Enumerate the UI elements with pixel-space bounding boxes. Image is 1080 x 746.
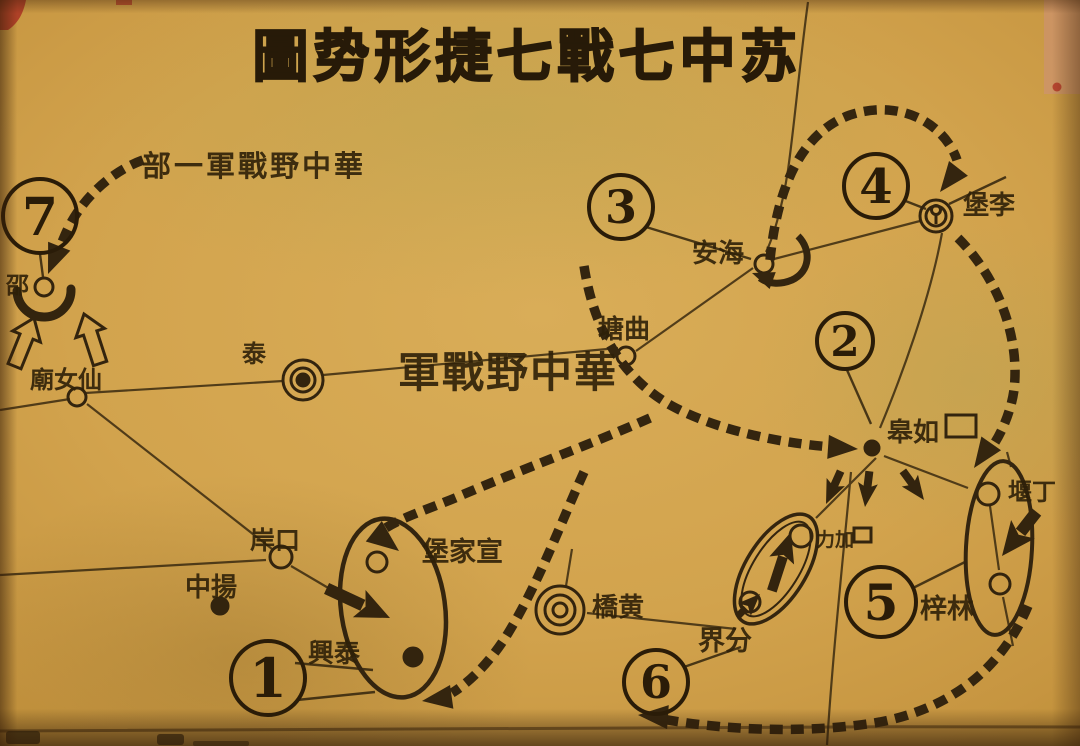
town-shaobo	[35, 278, 53, 296]
cutoff-print-fragment	[157, 734, 184, 745]
label-kouan: 岸口	[250, 526, 300, 555]
label-fenjie: 界分	[698, 626, 752, 657]
label-huazhong-detachment: 部一軍戰野中華	[142, 149, 366, 183]
red-corner-mark	[0, 0, 26, 30]
town-jiali	[790, 525, 812, 547]
town-taixing-dot	[404, 648, 422, 666]
attack-arrow-taixing	[320, 575, 396, 632]
label-xuanjiabao: 堡家宣	[422, 536, 503, 568]
road	[0, 399, 70, 410]
label-huazhong-field-army: 軍戰野中華	[398, 348, 618, 397]
outline-arrows	[1, 309, 115, 371]
road	[85, 381, 283, 393]
leader-2	[847, 370, 871, 424]
battle-4: 4	[844, 154, 908, 218]
road	[636, 268, 753, 351]
label-rugao: 皋如	[887, 417, 939, 448]
rugao-square-symbol	[946, 415, 976, 437]
battle-7-number: 7	[22, 187, 58, 248]
road	[87, 404, 272, 549]
town-huangqiao-outer	[536, 586, 584, 634]
label-huangqiao: 橋黄	[592, 593, 644, 623]
battle-numbers: 1 2 3 4 5 6 7	[3, 154, 916, 715]
label-xiannvmiao: 廟女仙	[30, 366, 102, 394]
leader-5	[913, 562, 965, 588]
road	[774, 221, 920, 259]
town-dingyan	[977, 483, 999, 505]
label-taizhou: 泰	[242, 340, 267, 368]
road	[990, 506, 999, 570]
arrow-route-to-shaobo	[53, 160, 143, 262]
battle-2-number: 2	[830, 317, 859, 366]
leader-1b	[297, 692, 375, 700]
town-symbols	[17, 200, 1010, 666]
battle-5: 5	[846, 567, 916, 637]
battle-2: 2	[817, 313, 873, 369]
road	[566, 549, 572, 586]
battle-3: 3	[589, 175, 653, 239]
arrow-south-to-taixing	[452, 472, 584, 693]
road	[884, 456, 968, 488]
arrow-center-to-rugao	[584, 266, 832, 447]
label-yangzhong: 中揚	[185, 573, 237, 603]
battle-1-number: 1	[249, 646, 287, 710]
cutoff-print-fragment	[193, 741, 249, 746]
attack-arrow-jiali	[759, 528, 803, 595]
arrowhead	[827, 435, 859, 461]
town-linzi	[990, 574, 1010, 594]
outline-arrow	[70, 309, 115, 368]
battle-6: 6	[624, 650, 688, 714]
town-huangqiao-inner	[553, 603, 567, 617]
battle-6-number: 6	[640, 655, 672, 709]
pink-edge-strip	[1044, 0, 1080, 94]
town-libao-core	[932, 206, 941, 215]
leader-7	[40, 254, 43, 277]
label-jiali: 力加	[816, 528, 854, 551]
red-edge-speck	[116, 0, 132, 5]
label-shaobo: 邵	[5, 273, 29, 299]
paper-crease	[0, 727, 1080, 731]
arrow-east-arc	[958, 238, 1015, 452]
label-linzi: 梓林	[920, 593, 974, 625]
battle-4-number: 4	[859, 159, 892, 215]
town-huangqiao-mid	[545, 595, 575, 625]
road	[880, 233, 942, 428]
map-title: 圖势形捷七戰七中苏	[253, 25, 802, 90]
attack-arrow-large	[990, 503, 1048, 566]
arrow-to-xuanjiabao	[380, 418, 650, 532]
town-rugao-dot	[865, 441, 879, 455]
cutoff-print-fragment	[6, 731, 40, 744]
jiali-square-symbol	[854, 528, 871, 542]
battle-1: 1	[231, 641, 305, 715]
label-qutang: 塘曲	[598, 314, 650, 345]
town-xuanjiabao	[367, 552, 387, 572]
leader-lines	[40, 177, 1006, 700]
red-speck	[1053, 83, 1062, 92]
town-taizhou-dot	[297, 374, 309, 386]
battle-map: 圖势形捷七戰七中苏	[0, 0, 1080, 746]
label-dingyan: 堰丁	[1008, 478, 1056, 506]
label-taixing: 興泰	[308, 639, 361, 669]
battle-7: 7	[3, 179, 77, 253]
battle-5-number: 5	[864, 573, 899, 632]
label-libao: 堡李	[963, 190, 1016, 221]
label-haian: 安海	[692, 239, 744, 269]
battle-3-number: 3	[605, 180, 637, 234]
aged-map-photo: 圖势形捷七戰七中苏	[0, 0, 1080, 746]
